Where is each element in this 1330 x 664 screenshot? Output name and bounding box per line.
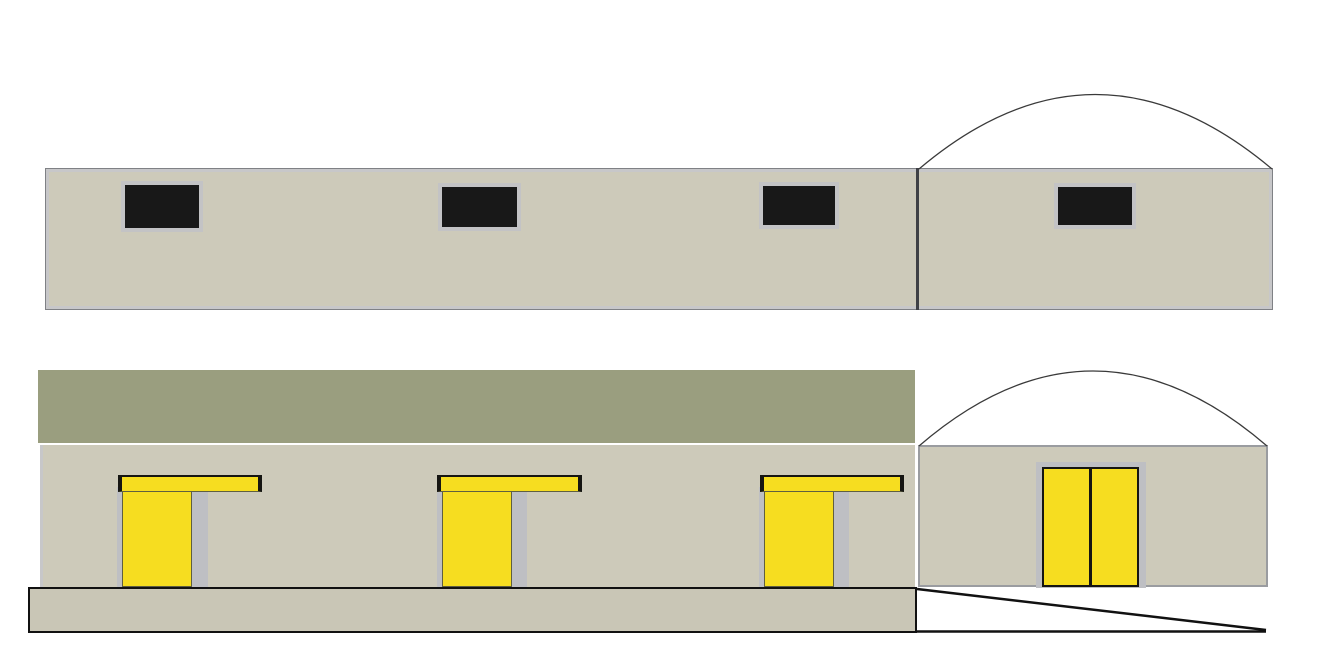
upper-section-divider	[916, 168, 919, 310]
door-canopy-1	[118, 475, 262, 492]
door-canopy-2	[437, 475, 582, 492]
olive-roof-band	[38, 370, 915, 443]
door-canopy-3	[760, 475, 904, 492]
window-3	[759, 182, 839, 229]
elevation-drawing	[0, 0, 1330, 664]
ramp-slope-line	[917, 589, 1266, 630]
base-plinth	[28, 587, 917, 633]
upper-dome-roof-arc	[919, 95, 1272, 170]
window-2	[438, 183, 521, 231]
door-1	[122, 490, 192, 587]
door-2	[442, 490, 512, 587]
double-door-leaf-left	[1042, 467, 1091, 587]
door-3	[764, 490, 834, 587]
window-4	[1054, 183, 1136, 229]
window-1	[121, 181, 203, 232]
lower-dome-roof-arc	[919, 371, 1267, 446]
double-door-leaf-right	[1090, 467, 1139, 587]
